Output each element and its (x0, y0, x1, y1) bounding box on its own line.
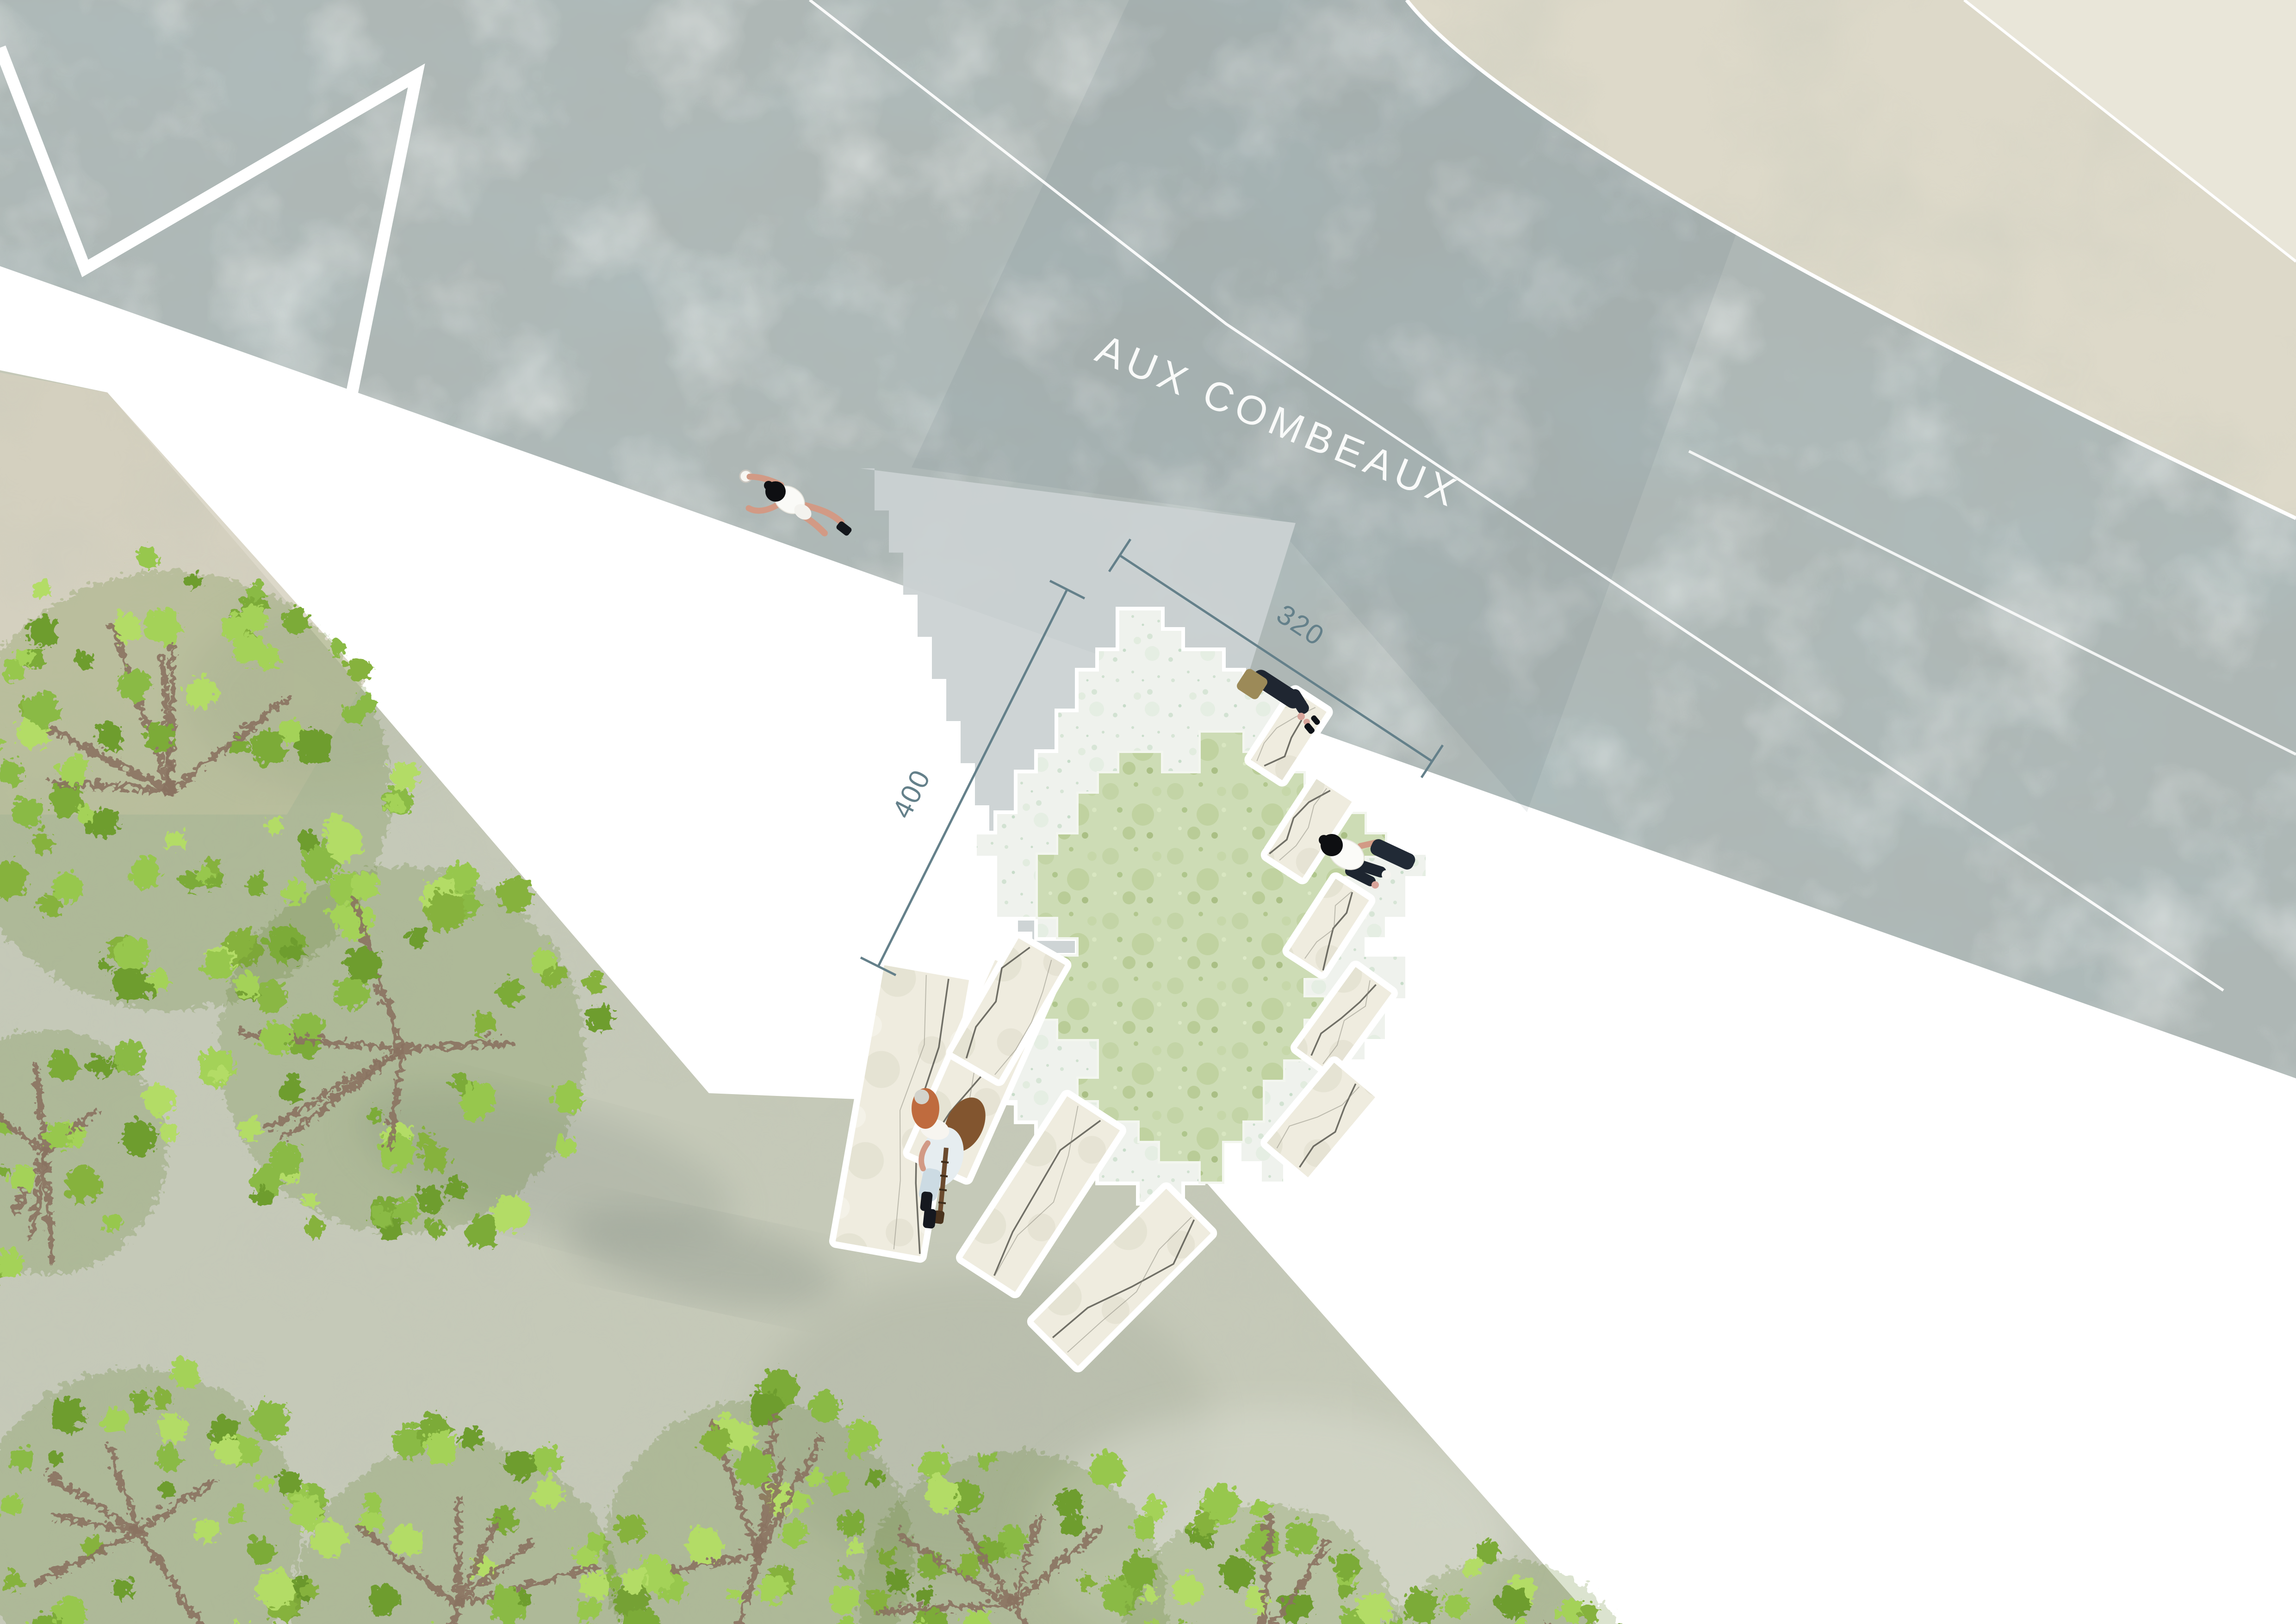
plaza-paving-cell (1079, 672, 1100, 693)
plaza-lawn-cell (1241, 916, 1263, 937)
plaza-paving-cell (1160, 692, 1181, 713)
plaza-lawn-cell (1058, 834, 1080, 856)
plaza-lawn-cell (1241, 814, 1263, 835)
plaza-lawn-cell (1160, 855, 1181, 876)
plaza-lawn-cell (1099, 794, 1120, 815)
plaza-paving-cell (1119, 610, 1141, 632)
plaza-lawn-cell (1119, 875, 1141, 896)
plaza-lawn-cell (1241, 1079, 1263, 1100)
plaza-lawn-cell (1221, 916, 1242, 937)
plaza-lawn-cell (1140, 1058, 1161, 1080)
plaza-lawn-cell (1201, 834, 1222, 856)
plaza-lawn-cell (1201, 855, 1222, 876)
plaza-lawn-cell (1140, 1018, 1161, 1039)
plaza-lawn-cell (1180, 855, 1202, 876)
plaza-lawn-cell (1119, 1079, 1141, 1100)
plaza-lawn-cell (1140, 1120, 1161, 1141)
plaza-lawn-cell (1241, 957, 1263, 978)
plaza-lawn-cell (1262, 896, 1283, 917)
plaza-paving-cell (1384, 957, 1405, 978)
plaza-lawn-cell (1079, 875, 1100, 896)
plaza-lawn-cell (1241, 875, 1263, 896)
plaza-lawn-cell (1221, 834, 1242, 856)
plaza-paving-cell (1140, 672, 1161, 693)
plaza-lawn-cell (1038, 896, 1059, 917)
plaza-lawn-cell (1221, 1099, 1242, 1120)
plaza-lawn-cell (1140, 753, 1161, 774)
plaza-paving-cell (1099, 672, 1120, 693)
plaza-lawn-cell (1058, 916, 1080, 937)
plaza-lawn-cell (1221, 1079, 1242, 1100)
plaza-lawn-cell (1160, 875, 1181, 896)
plaza-lawn-cell (1262, 1058, 1283, 1080)
plaza-paving-cell (1018, 1099, 1039, 1120)
plaza-paving-cell (1140, 610, 1161, 632)
plaza-lawn-cell (1241, 936, 1263, 958)
plaza-lawn-cell (1201, 896, 1222, 917)
plaza-paving-cell (1140, 712, 1161, 734)
plaza-lawn-cell (1099, 834, 1120, 856)
plaza-lawn-cell (1241, 997, 1263, 1019)
plaza-lawn-cell (1079, 794, 1100, 815)
plaza-lawn-cell (1140, 1079, 1161, 1100)
plaza-paving-cell (997, 896, 1018, 917)
plaza-lawn-cell (1241, 773, 1263, 795)
plaza-lawn-cell (1099, 916, 1120, 937)
plaza-lawn-cell (1180, 875, 1202, 896)
plaza-lawn-cell (1079, 997, 1100, 1019)
plaza-lawn-cell (1262, 936, 1283, 958)
plaza-lawn-cell (1282, 997, 1303, 1019)
plaza-lawn-cell (1140, 916, 1161, 937)
plaza-lawn-cell (1180, 936, 1202, 958)
tree-branch (453, 1497, 454, 1601)
plaza-lawn-cell (1241, 1038, 1263, 1059)
plaza-lawn-cell (1079, 1018, 1100, 1039)
plaza-paving-cell (1018, 773, 1039, 795)
plaza-paving-cell (1099, 692, 1120, 713)
plaza-lawn-cell (1119, 936, 1141, 958)
plaza-paving-cell (1140, 692, 1161, 713)
plaza-paving-cell (1140, 631, 1161, 652)
plaza-lawn-cell (1079, 1079, 1100, 1100)
plaza-lawn-cell (1058, 855, 1080, 876)
plaza-lawn-cell (1160, 773, 1181, 795)
plaza-lawn-cell (1241, 834, 1263, 856)
plaza-lawn-cell (1262, 875, 1283, 896)
plaza-lawn-cell (1079, 977, 1100, 998)
plaza-paving-cell (1180, 651, 1202, 672)
plaza-paving-cell (1038, 1058, 1059, 1080)
plaza-lawn-cell (1099, 1058, 1120, 1080)
plaza-lawn-cell (1221, 936, 1242, 958)
plaza-paving-cell (1018, 794, 1039, 815)
plaza-lawn-cell (1140, 1099, 1161, 1120)
plaza-lawn-cell (1241, 896, 1263, 917)
plaza-paving-cell (1099, 712, 1120, 734)
plaza-lawn-cell (1140, 997, 1161, 1019)
plaza-lawn-cell (1160, 916, 1181, 937)
plaza-lawn-cell (1180, 896, 1202, 917)
plaza-lawn-cell (1221, 997, 1242, 1019)
plaza-lawn-cell (1282, 977, 1303, 998)
plaza-paving-cell (1119, 1160, 1141, 1182)
plaza-paving-cell (1038, 773, 1059, 795)
plaza-paving-cell (977, 834, 998, 856)
plaza-paving-cell (1384, 896, 1405, 917)
plaza-lawn-cell (1241, 855, 1263, 876)
plaza-paving-cell (1038, 753, 1059, 774)
plaza-lawn-cell (1201, 1160, 1222, 1182)
plaza-lawn-cell (1160, 1120, 1181, 1141)
plaza-lawn-cell (1140, 794, 1161, 815)
plaza-lawn-cell (1160, 977, 1181, 998)
plaza-lawn-cell (1201, 957, 1222, 978)
plaza-lawn-cell (1079, 834, 1100, 856)
plaza-lawn-cell (1119, 1018, 1141, 1039)
plaza-lawn-cell (1221, 1038, 1242, 1059)
boot (920, 1191, 933, 1212)
plaza-lawn-cell (1119, 916, 1141, 937)
plaza-lawn-cell (1119, 957, 1141, 978)
plaza-paving-cell (1140, 651, 1161, 672)
plaza-lawn-cell (1119, 814, 1141, 835)
plaza-lawn-cell (1201, 794, 1222, 815)
plaza-lawn-cell (1221, 1018, 1242, 1039)
plaza-paving-cell (1201, 651, 1222, 672)
plaza-lawn-cell (1180, 977, 1202, 998)
plaza-lawn-cell (1099, 896, 1120, 917)
plaza-lawn-cell (1160, 834, 1181, 856)
plaza-lawn-cell (1262, 977, 1283, 998)
plaza-lawn-cell (1221, 814, 1242, 835)
plaza-paving-cell (1079, 712, 1100, 734)
plaza-paving-cell (1119, 692, 1141, 713)
plaza-lawn-cell (1221, 896, 1242, 917)
plaza-paving-cell (1119, 631, 1141, 652)
plaza-lawn-cell (1058, 896, 1080, 917)
plaza-lawn-cell (1119, 1058, 1141, 1080)
plaza-lawn-cell (1201, 814, 1222, 835)
plaza-lawn-cell (1079, 916, 1100, 937)
plaza-lawn-cell (1160, 1058, 1181, 1080)
plaza-lawn-cell (1058, 997, 1080, 1019)
plaza-lawn-cell (1180, 916, 1202, 937)
plaza-lawn-cell (1180, 1079, 1202, 1100)
site-plan-canvas: AUX COMBEAUX 320 400 (0, 0, 2296, 1624)
plaza-lawn-cell (1180, 957, 1202, 978)
plaza-lawn-cell (1262, 957, 1283, 978)
plaza-lawn-cell (1160, 896, 1181, 917)
boot (923, 1208, 937, 1229)
plaza-lawn-cell (1282, 896, 1303, 917)
plaza-lawn-cell (1180, 814, 1202, 835)
plaza-lawn-cell (1201, 916, 1222, 937)
plaza-paving-cell (1119, 712, 1141, 734)
plaza-lawn-cell (1119, 1038, 1141, 1059)
plaza-lawn-cell (1099, 957, 1120, 978)
plaza-lawn-cell (1221, 977, 1242, 998)
plaza-lawn-cell (1262, 1038, 1283, 1059)
plaza-lawn-cell (1160, 1099, 1181, 1120)
plaza-lawn-cell (1160, 997, 1181, 1019)
plaza-lawn-cell (1221, 855, 1242, 876)
plaza-lawn-cell (1201, 1140, 1222, 1161)
plaza-paving-cell (1079, 692, 1100, 713)
plaza-paving-cell (1180, 692, 1202, 713)
plaza-lawn-cell (1140, 875, 1161, 896)
plaza-lawn-cell (1180, 1099, 1202, 1120)
plaza-lawn-cell (1201, 733, 1222, 754)
plaza-paving-cell (1262, 1160, 1283, 1182)
plaza-paving-cell (1099, 651, 1120, 672)
plaza-lawn-cell (1119, 997, 1141, 1019)
plaza-lawn-cell (1079, 896, 1100, 917)
plaza-lawn-cell (1119, 1099, 1141, 1120)
plaza-lawn-cell (1221, 1120, 1242, 1141)
plaza-lawn-cell (1119, 773, 1141, 795)
plaza-paving-cell (1058, 753, 1080, 774)
plaza-lawn-cell (1221, 794, 1242, 815)
plaza-lawn-cell (1140, 855, 1161, 876)
plaza-paving-cell (997, 855, 1018, 876)
plaza-lawn-cell (1201, 1038, 1222, 1059)
plaza-lawn-cell (1140, 936, 1161, 958)
plaza-lawn-cell (1221, 875, 1242, 896)
plaza-lawn-cell (1140, 1038, 1161, 1059)
plaza-lawn-cell (1221, 753, 1242, 774)
plaza-lawn-cell (1180, 1058, 1202, 1080)
plaza-lawn-cell (1180, 773, 1202, 795)
plaza-lawn-cell (1079, 957, 1100, 978)
plaza-lawn-cell (1201, 753, 1222, 774)
plaza-paving-cell (1160, 672, 1181, 693)
plaza-lawn-cell (1241, 1058, 1263, 1080)
plaza-lawn-cell (1241, 794, 1263, 815)
plaza-paving-cell (1038, 794, 1059, 815)
plaza-lawn-cell (1099, 773, 1120, 795)
plaza-lawn-cell (1201, 997, 1222, 1019)
plaza-paving-cell (1119, 672, 1141, 693)
plaza-lawn-cell (1119, 834, 1141, 856)
plaza-lawn-cell (1241, 1099, 1263, 1120)
plaza-paving-cell (1018, 814, 1039, 835)
plaza-paving-cell (997, 834, 1018, 856)
plaza-lawn-cell (1099, 855, 1120, 876)
plaza-lawn-cell (1140, 957, 1161, 978)
plaza-paving-cell (1180, 672, 1202, 693)
plaza-lawn-cell (1180, 794, 1202, 815)
plaza-lawn-cell (1140, 834, 1161, 856)
plaza-lawn-cell (1180, 1120, 1202, 1141)
plaza-lawn-cell (1201, 875, 1222, 896)
plaza-lawn-cell (1180, 1018, 1202, 1039)
plaza-lawn-cell (1262, 997, 1283, 1019)
plaza-lawn-cell (1201, 1058, 1222, 1080)
plaza-paving-cell (1018, 1079, 1039, 1100)
plaza-paving-cell (1160, 631, 1181, 652)
plaza-lawn-cell (1262, 916, 1283, 937)
plaza-lawn-cell (1099, 936, 1120, 958)
plaza-lawn-cell (1201, 773, 1222, 795)
plaza-lawn-cell (1099, 814, 1120, 835)
plaza-lawn-cell (1099, 1018, 1120, 1039)
plaza-paving-cell (997, 814, 1018, 835)
plaza-paving-cell (1119, 651, 1141, 672)
plaza-lawn-cell (1221, 773, 1242, 795)
plaza-lawn-cell (1160, 957, 1181, 978)
plaza-lawn-cell (1160, 1140, 1181, 1161)
plaza-lawn-cell (1119, 794, 1141, 815)
plaza-paving-cell (997, 875, 1018, 896)
plaza-lawn-cell (1180, 834, 1202, 856)
plaza-lawn-cell (1160, 794, 1181, 815)
plaza-lawn-cell (1038, 875, 1059, 896)
plaza-lawn-cell (1140, 814, 1161, 835)
plaza-paving-cell (1058, 712, 1080, 734)
plaza-lawn-cell (1038, 855, 1059, 876)
plaza-lawn-cell (1201, 1018, 1222, 1039)
plaza-paving-cell (1160, 712, 1181, 734)
plaza-lawn-cell (1201, 1120, 1222, 1141)
plaza-lawn-cell (1160, 1018, 1181, 1039)
plaza-lawn-cell (1079, 814, 1100, 835)
plaza-lawn-cell (1241, 977, 1263, 998)
plaza-paving-cell (1079, 733, 1100, 754)
plaza-lawn-cell (1099, 1079, 1120, 1100)
plaza-lawn-cell (1119, 855, 1141, 876)
plaza-lawn-cell (1221, 1058, 1242, 1080)
plaza-lawn-cell (1058, 875, 1080, 896)
plaza-lawn-cell (1221, 733, 1242, 754)
plaza-paving-cell (1221, 692, 1242, 713)
plaza-lawn-cell (1241, 1018, 1263, 1039)
plaza-paving-cell (1201, 692, 1222, 713)
plaza-lawn-cell (1160, 1038, 1181, 1059)
plaza-lawn-cell (1180, 1140, 1202, 1161)
plaza-lawn-cell (1262, 1018, 1283, 1039)
plaza-lawn-cell (1079, 855, 1100, 876)
plaza-lawn-cell (1201, 977, 1222, 998)
plaza-lawn-cell (1140, 977, 1161, 998)
plaza-lawn-cell (1160, 936, 1181, 958)
plaza-paving-cell (1038, 1079, 1059, 1100)
plaza-lawn-cell (1180, 1038, 1202, 1059)
plaza-lawn-cell (1221, 957, 1242, 978)
plaza-lawn-cell (1201, 1099, 1222, 1120)
plaza-lawn-cell (1160, 1079, 1181, 1100)
plaza-paving-cell (1160, 651, 1181, 672)
tree-branch (167, 641, 169, 787)
plaza-lawn-cell (1119, 896, 1141, 917)
plaza-lawn-cell (1099, 997, 1120, 1019)
plaza-paving-cell (1201, 672, 1222, 693)
plaza-lawn-cell (1140, 773, 1161, 795)
plaza-paving-cell (1058, 733, 1080, 754)
plaza-lawn-cell (1201, 936, 1222, 958)
plaza-lawn-cell (1140, 896, 1161, 917)
plaza-lawn-cell (1180, 997, 1202, 1019)
plaza-lawn-cell (1160, 814, 1181, 835)
plaza-lawn-cell (1079, 936, 1100, 958)
plaza-lawn-cell (1099, 977, 1120, 998)
plaza-lawn-cell (1058, 1018, 1080, 1039)
plaza-lawn-cell (1119, 753, 1141, 774)
plaza-lawn-cell (1201, 1079, 1222, 1100)
plaza-lawn-cell (1119, 977, 1141, 998)
plaza-lawn-cell (1099, 875, 1120, 896)
plaza-lawn-cell (1099, 1038, 1120, 1059)
plaza-lawn-cell (1262, 794, 1283, 815)
